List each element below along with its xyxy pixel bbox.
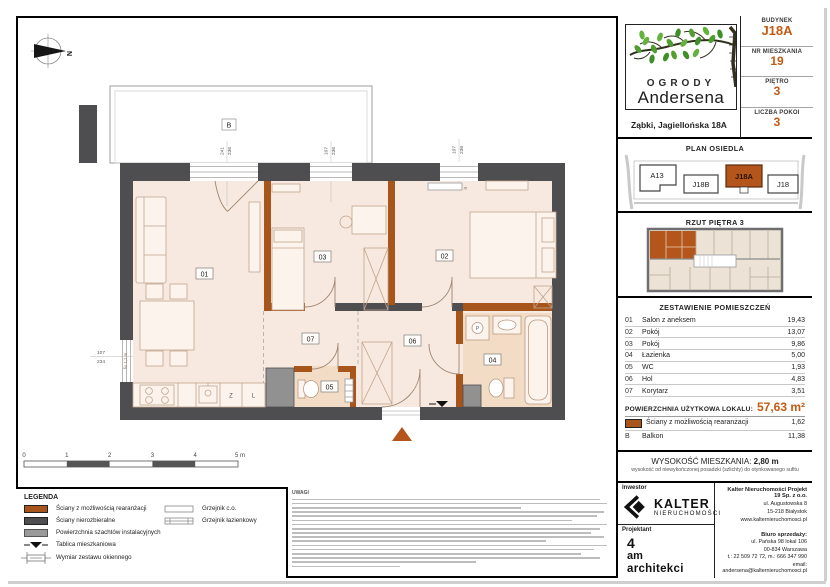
floor-overview-title: RZUT PIĘTRA 3 (618, 213, 812, 227)
rooms-table-title: ZESTAWIENIE POMIESZCZEŃ (625, 303, 805, 312)
svg-text:01: 01 (201, 272, 209, 279)
meta-budynek: BUDYNEK J18A (741, 16, 813, 47)
titleblock-footer: Inwestor KALTER NIERUCHOMOŚCI Projektant (618, 483, 812, 578)
floor-overview-map (640, 227, 790, 293)
kalter-wordmark: KALTER NIERUCHOMOŚCI (654, 498, 721, 518)
legend-board-icon (24, 540, 48, 550)
apartment-number-value: 19 (741, 55, 813, 69)
legend-title: LEGENDA (24, 494, 286, 501)
entrance-marker (392, 427, 412, 441)
apartment-meta: BUDYNEK J18A NR MIESZKANIA 19 PIĘTRO 3 L… (740, 16, 813, 138)
table-row: 06Hol4,83 (625, 374, 805, 386)
meta-pietro: PIĘTRO 3 (741, 77, 813, 108)
designer-cell: Projektant 4 am architekci (618, 525, 714, 578)
meta-nr-mieszkania: NR MIESZKANIA 19 (741, 47, 813, 78)
rooms-count-value: 3 (741, 116, 813, 130)
total-area-value: 57,63 m² (757, 400, 805, 414)
svg-text:3: 3 (151, 453, 155, 459)
footer-right-column: Kalter Nieruchomości Projekt 19 Sp. z o.… (715, 483, 812, 578)
svg-text:02: 02 (441, 254, 449, 261)
legend-structural-wall-swatch (24, 517, 48, 525)
kalter-logo-icon (624, 494, 650, 520)
page-edge-shadow-bottom (8, 581, 826, 584)
legend-radiator-icon (164, 505, 194, 513)
project-address: Ząbki, Jagiellońska 18A (618, 120, 740, 130)
table-row: 04Łazienka5,00 (625, 350, 805, 362)
svg-text:107: 107 (97, 350, 105, 356)
svg-text:J18A: J18A (735, 172, 754, 181)
svg-text:107: 107 (324, 147, 330, 155)
designer-logo: 4 am architekci (627, 536, 684, 574)
scale-bar: 0 1 2 3 4 5 m (22, 453, 245, 467)
svg-text:241: 241 (220, 147, 226, 155)
svg-text:1: 1 (65, 453, 69, 459)
svg-text:236: 236 (227, 147, 233, 155)
svg-text:J18B: J18B (692, 180, 709, 189)
svg-text:236: 236 (459, 146, 465, 154)
building-value: J18A (741, 24, 813, 39)
compass-north-label: N (65, 51, 72, 56)
movable-walls-row: Ściany z możliwością rearanżacji 1,62 (625, 417, 805, 431)
apartment-floorplan: N B (16, 16, 616, 487)
notes-illegible-text (292, 499, 610, 568)
height-line: WYSOKOŚĆ MIESZKANIA: 2,80 m (618, 457, 812, 466)
header-section: OGRODY Andersena Ząbki, Jagiellońska 18A… (618, 16, 812, 139)
site-plan-section: PLAN OSIEDLA A13 J18B J18A J18 (618, 139, 812, 213)
dishwasher-label: Z (229, 394, 233, 400)
floor-value: 3 (741, 85, 813, 99)
sales-office-label: Biuro sprzedaży: (720, 532, 807, 538)
compass-icon: N (31, 34, 72, 68)
site-plan-map: A13 J18B J18A J18 (620, 153, 810, 211)
legend-movable-wall-swatch (24, 505, 48, 513)
balcony-row: B Balkon 11,38 (625, 431, 805, 442)
investor-cell: Inwestor KALTER NIERUCHOMOŚCI (618, 483, 714, 525)
floor-overview-section: RZUT PIĘTRA 3 (618, 213, 812, 297)
footer-left-column: Inwestor KALTER NIERUCHOMOŚCI Projektant (618, 483, 715, 578)
svg-text:107: 107 (452, 146, 458, 154)
notes-title: UWAGI (292, 490, 610, 496)
svg-text:5 m: 5 m (235, 453, 245, 459)
site-plan-title: PLAN OSIEDLA (618, 139, 812, 153)
legend-bath-radiator-icon (164, 517, 194, 525)
height-label: WYSOKOŚĆ MIESZKANIA: (651, 457, 751, 466)
page-edge-shadow-right (824, 8, 827, 581)
svg-text:234: 234 (97, 359, 105, 365)
svg-text:06: 06 (409, 339, 417, 346)
total-area-label: POWIERZCHNIA UŻYTKOWA LOKALU: (625, 406, 757, 413)
height-note: wysokość od niewykończonej posadzki (szl… (618, 467, 812, 473)
total-area-row: POWIERZCHNIA UŻYTKOWA LOKALU: 57,63 m² (625, 397, 805, 417)
svg-text:4: 4 (194, 453, 198, 459)
legend-window-dim-icon (21, 551, 51, 565)
developer-logo: OGRODY Andersena (625, 24, 737, 110)
company-name: Kalter Nieruchomości Projekt 19 Sp. z o.… (720, 487, 807, 499)
svg-text:05: 05 (326, 385, 334, 392)
info-panel: OGRODY Andersena Ząbki, Jagiellońska 18A… (616, 16, 812, 578)
table-row: 02Pokój13,07 (625, 327, 805, 339)
kalter-logo: KALTER NIERUCHOMOŚCI (624, 494, 721, 520)
height-value: 2,80 m (754, 457, 779, 466)
investor-label: Inwestor (622, 485, 647, 491)
svg-text:0: 0 (22, 453, 26, 459)
designer-label: Projektant (622, 527, 651, 533)
svg-text:2: 2 (108, 453, 112, 459)
meta-liczba-pokoi: LICZBA POKOI 3 (741, 108, 813, 139)
svg-text:03: 03 (319, 255, 327, 262)
notes-block: UWAGI (292, 490, 610, 574)
svg-text:07: 07 (307, 337, 315, 344)
rooms-table-section: ZESTAWIENIE POMIESZCZEŃ 01Salon z anekse… (618, 298, 812, 452)
svg-text:A13: A13 (650, 171, 663, 180)
logo-line2: Andersena (626, 89, 736, 106)
legend-box: LEGENDA Ściany z możliwością rearanżacji… (16, 487, 288, 578)
logo-wordmark: OGRODY Andersena (626, 79, 736, 106)
table-row: 01Salon z aneksem19,43 (625, 315, 805, 327)
svg-text:04: 04 (489, 358, 497, 365)
height-section: WYSOKOŚĆ MIESZKANIA: 2,80 m wysokość od … (618, 452, 812, 484)
movable-wall-swatch (625, 419, 642, 428)
table-row: 05WC1,93 (625, 362, 805, 374)
table-row: 03Pokój9,86 (625, 338, 805, 350)
table-row: 07Korytarz3,51 (625, 385, 805, 397)
highlighted-apartment (650, 231, 696, 259)
svg-text:236: 236 (331, 147, 337, 155)
svg-text:J18: J18 (777, 180, 789, 189)
fix-label-left: fix 1,1 m (123, 352, 128, 369)
legend-shaft-swatch (24, 529, 48, 537)
floorplan-sheet: N B (0, 0, 830, 587)
balcony-label: B (227, 123, 232, 130)
